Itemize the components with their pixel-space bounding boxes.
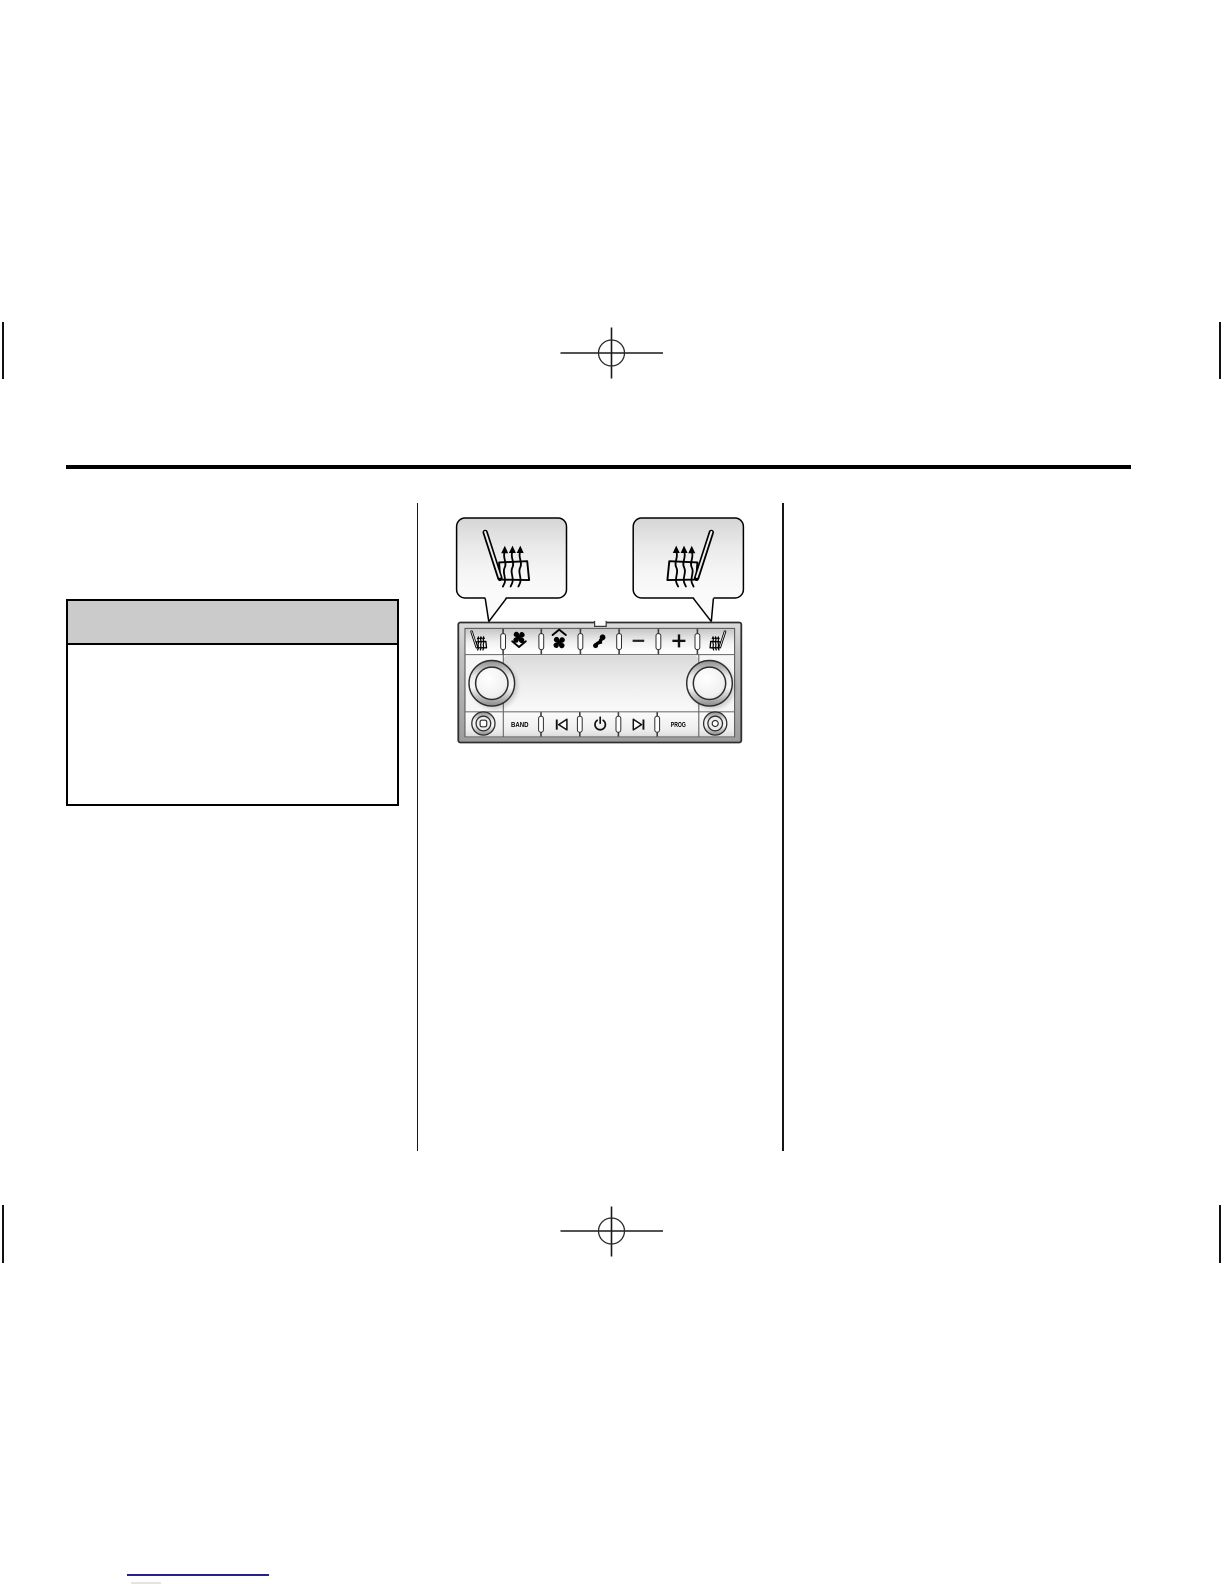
svg-text:PROG: PROG bbox=[671, 720, 686, 729]
svg-text:BAND: BAND bbox=[511, 720, 529, 729]
